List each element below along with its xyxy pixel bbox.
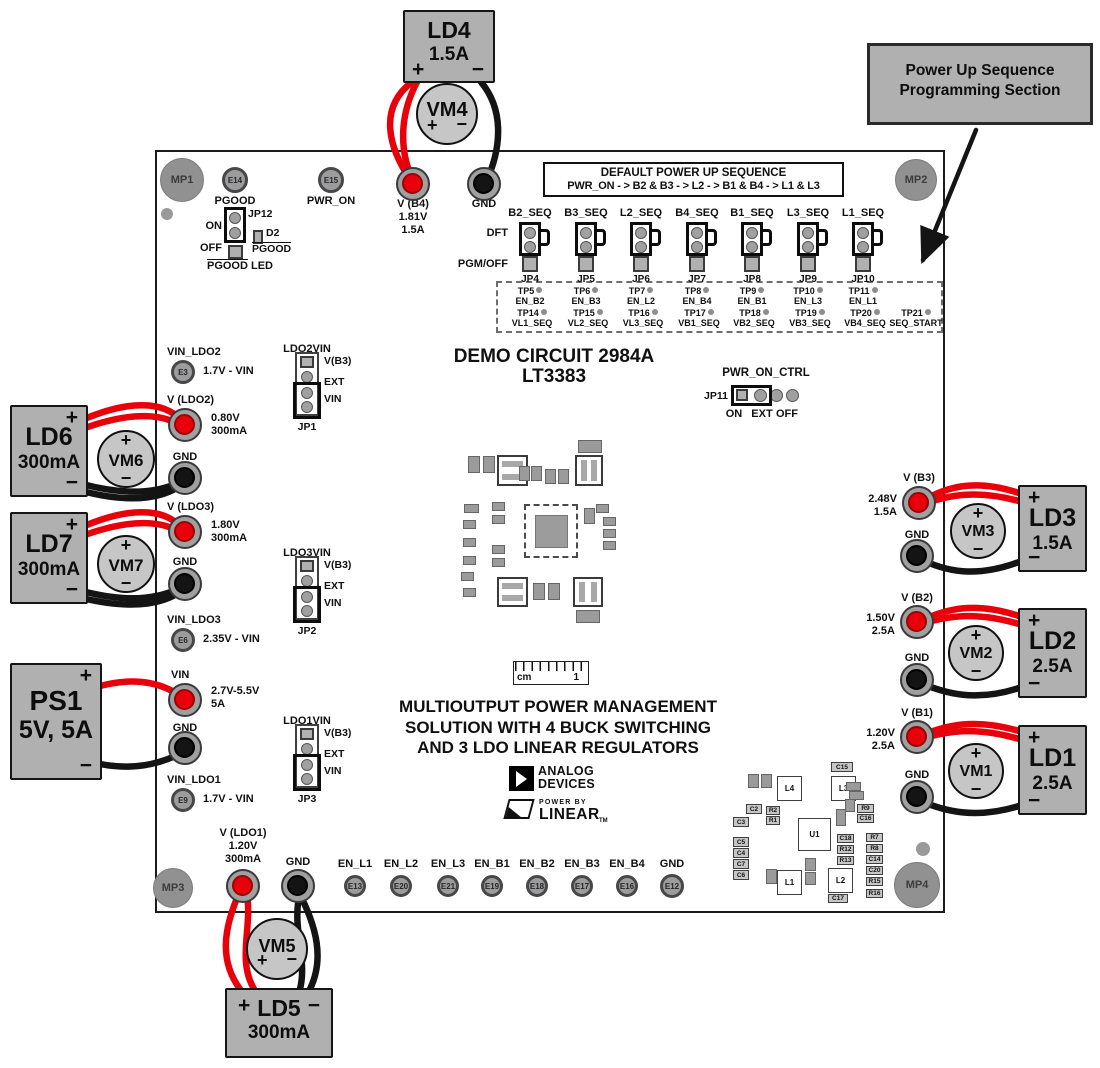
seq-jumper-tab bbox=[597, 229, 606, 246]
minus-terminal-mark: − bbox=[1028, 792, 1040, 809]
jp12-id-label: JP12 bbox=[248, 209, 273, 220]
description-line3: AND 3 LDO LINEAR REGULATORS bbox=[368, 738, 748, 759]
terminal-vin-label: VIN bbox=[171, 670, 189, 682]
seq-jumper-id-jp10: JP10 bbox=[841, 275, 885, 286]
silkscreen-pad bbox=[584, 508, 595, 524]
turret-e14: E14 bbox=[222, 167, 248, 193]
vin-jumper-pin3-label-jp2: VIN bbox=[324, 598, 342, 609]
load-box-ld3: LD31.5A+− bbox=[1018, 485, 1087, 572]
seq-jumper-pad bbox=[855, 256, 871, 272]
testpoint-pad-tp8 bbox=[703, 287, 709, 293]
seq-jumper-tab bbox=[652, 229, 661, 246]
terminal-vb4 bbox=[396, 167, 430, 201]
description-line1: MULTIOUTPUT POWER MANAGEMENT bbox=[368, 697, 748, 718]
load-box-ld7: LD7300mA+− bbox=[10, 512, 88, 604]
pgood-led-label: PGOOD LED bbox=[198, 261, 282, 273]
silkscreen-pad bbox=[603, 517, 616, 526]
silkscreen-pad bbox=[463, 520, 476, 529]
silkscreen-pad bbox=[558, 469, 569, 484]
default-sequence-line2: PWR_ON - > B2 & B3 - > L2 - > B1 & B4 - … bbox=[545, 180, 842, 192]
plus-terminal-mark: + bbox=[1028, 489, 1040, 506]
load-box-ld1: LD12.5A+− bbox=[1018, 725, 1087, 815]
voltmeter-vm7: VM7+− bbox=[97, 535, 155, 593]
vin-jumper-id-jp1: JP1 bbox=[282, 422, 332, 433]
callout-power-up-sequence: Power Up Sequence Programming Section bbox=[867, 43, 1093, 125]
silkscreen-pad bbox=[766, 869, 777, 884]
silkscreen-pad bbox=[492, 515, 505, 524]
testpoint-pad-tp16 bbox=[652, 309, 658, 315]
silkscreen-part-r12: R12 bbox=[837, 845, 854, 854]
vin-jumper-pin1-pad bbox=[300, 356, 314, 368]
terminal-vin bbox=[168, 683, 202, 717]
silkscreen-part-c15: C15 bbox=[831, 762, 853, 772]
terminal-gnd-b2-center bbox=[906, 669, 927, 690]
voltmeter-vm5: VM5+− bbox=[246, 918, 308, 980]
silkscreen-inductor bbox=[573, 577, 603, 607]
silkscreen-part-r9: R9 bbox=[857, 804, 874, 813]
minus-terminal-mark: − bbox=[950, 782, 1002, 797]
vin-jumper-pin2-label-jp3: EXT bbox=[324, 749, 344, 760]
minus-terminal-mark: − bbox=[66, 474, 78, 491]
terminal-vb1-label: V (B1) bbox=[877, 708, 957, 720]
vin-jumper-shunt-jp3 bbox=[293, 754, 321, 791]
plus-terminal-mark: + bbox=[952, 506, 1004, 521]
terminal-vldo3-value-1: 300mA bbox=[211, 533, 247, 545]
jp11-id-label: JP11 bbox=[694, 391, 728, 402]
seq-jumper-tab bbox=[541, 229, 550, 246]
silkscreen-pad bbox=[578, 440, 602, 453]
minus-terminal-mark: − bbox=[456, 117, 467, 132]
terminal-vb3-center bbox=[908, 492, 929, 513]
silkscreen-pad bbox=[463, 588, 476, 597]
testpoint-pad-tp21 bbox=[925, 309, 931, 315]
minus-terminal-mark: − bbox=[1028, 675, 1040, 692]
terminal-vldo1-center bbox=[232, 875, 253, 896]
turret-e20: E20 bbox=[390, 875, 412, 897]
terminal-vldo3 bbox=[168, 515, 202, 549]
silkscreen-pad bbox=[483, 456, 495, 473]
terminal-vin-center bbox=[174, 689, 195, 710]
seq-jumper-pin bbox=[635, 241, 647, 253]
silkscreen-part-l1: L1 bbox=[777, 870, 802, 895]
testpoint-signal-tp11: EN_L1 bbox=[829, 297, 897, 307]
default-sequence-box: DEFAULT POWER UP SEQUENCE PWR_ON - > B2 … bbox=[543, 162, 844, 197]
vin-jumper-pin1-label-jp2: V(B3) bbox=[324, 560, 351, 571]
silkscreen-part-c14: C14 bbox=[866, 855, 883, 864]
seq-jumper-pin bbox=[635, 227, 647, 239]
seq-jumper-id-jp4: JP4 bbox=[508, 275, 552, 286]
silkscreen-pad bbox=[805, 858, 816, 871]
silkscreen-pad bbox=[748, 774, 759, 788]
minus-terminal-mark: − bbox=[952, 542, 1004, 557]
terminal-vb1-value-1: 2.5A bbox=[843, 741, 895, 753]
pwr-on-ctrl-title: PWR_ON_CTRL bbox=[718, 367, 814, 379]
linear-tm-label: TM bbox=[599, 818, 608, 824]
default-sequence-line1: DEFAULT POWER UP SEQUENCE bbox=[545, 167, 842, 179]
turret-e21: E21 bbox=[437, 875, 459, 897]
testpoint-pad-tp17 bbox=[708, 309, 714, 315]
adi-triangle-icon bbox=[516, 771, 527, 787]
d2-id-label: D2 bbox=[266, 228, 279, 239]
ps1-rating: 5V, 5A bbox=[12, 716, 100, 745]
seq-jumper-pin bbox=[857, 227, 869, 239]
seq-row-label-dft: DFT bbox=[468, 228, 508, 240]
voltmeter-vm6: VM6+− bbox=[97, 430, 155, 488]
minus-terminal-mark: − bbox=[66, 581, 78, 598]
silkscreen-pad bbox=[845, 799, 855, 812]
seq-jumper-id-jp9: JP9 bbox=[786, 275, 830, 286]
silkscreen-pad bbox=[548, 583, 560, 600]
silkscreen-ruler: cm 1 bbox=[513, 661, 589, 685]
silkscreen-pad bbox=[761, 774, 772, 788]
terminal-vb3-value-0: 2.48V bbox=[845, 494, 897, 506]
silkscreen-part-c6: C6 bbox=[733, 870, 749, 880]
seq-jumper-id-jp7: JP7 bbox=[675, 275, 719, 286]
terminal-gnd-b3-center bbox=[906, 545, 927, 566]
voltmeter-vm3: VM3+− bbox=[950, 503, 1006, 559]
silkscreen-part-r1: R1 bbox=[766, 816, 780, 825]
silkscreen-pad bbox=[846, 782, 861, 791]
seq-jumper-pin bbox=[691, 241, 703, 253]
testpoint-pad-tp15 bbox=[597, 309, 603, 315]
minus-terminal-mark: − bbox=[286, 952, 297, 967]
d2-pgood-label: PGOOD bbox=[252, 244, 291, 255]
load-box-ld2: LD22.5A+− bbox=[1018, 608, 1087, 698]
terminal-vldo1-value-0: 1.20V bbox=[198, 841, 288, 853]
terminal-gnd-b1-center bbox=[906, 786, 927, 807]
jp12-off-label: OFF bbox=[190, 243, 222, 255]
testpoint-pad-tp14 bbox=[541, 309, 547, 315]
silkscreen-part-c3: C3 bbox=[733, 817, 749, 827]
mount-post-mp4: MP4 bbox=[894, 862, 940, 908]
terminal-gnd-ldo1 bbox=[281, 869, 315, 903]
terminal-vin-value-1: 5A bbox=[211, 699, 225, 711]
silkscreen-part-c16: C16 bbox=[857, 814, 874, 823]
silkscreen-part-r16: R16 bbox=[866, 889, 883, 898]
testpoint-signal-tp21: SEQ_START bbox=[882, 319, 950, 329]
turret-e3: E3 bbox=[171, 360, 195, 384]
terminal-vin-value-0: 2.7V-5.5V bbox=[211, 686, 259, 698]
mount-dot bbox=[916, 842, 930, 856]
load-box-ld6: LD6300mA+− bbox=[10, 405, 88, 497]
vin-jumper-pin2-label-jp2: EXT bbox=[324, 581, 344, 592]
jp11-shunt bbox=[731, 385, 772, 406]
testpoint-pad-tp10 bbox=[817, 287, 823, 293]
analog-devices-logo-icon bbox=[509, 766, 534, 791]
plus-terminal-mark: + bbox=[99, 538, 153, 553]
board-title: DEMO CIRCUIT 2984A LT3383 bbox=[444, 347, 664, 387]
jp12-pin-2 bbox=[229, 227, 241, 239]
terminal-gnd-b2 bbox=[900, 663, 934, 697]
silkscreen-pad bbox=[849, 791, 864, 800]
terminal-gnd-ldo2 bbox=[168, 461, 202, 495]
description-line2: SOLUTION WITH 4 BUCK SWITCHING bbox=[368, 718, 748, 739]
seq-jumper-pad bbox=[522, 256, 538, 272]
callout-line2: Programming Section bbox=[870, 81, 1090, 101]
voltmeter-vm4: VM4+− bbox=[416, 83, 478, 145]
vin-jumper-pin1-label-jp1: V(B3) bbox=[324, 356, 351, 367]
jp11-pin-4 bbox=[786, 389, 799, 402]
turret-e15: E15 bbox=[318, 167, 344, 193]
seq-jumper-pin bbox=[857, 241, 869, 253]
vin-jumper-id-jp3: JP3 bbox=[282, 794, 332, 805]
silkscreen-part-c4: C4 bbox=[733, 848, 749, 858]
linear-label: LINEAR bbox=[539, 807, 600, 824]
jp11-option-off: OFF bbox=[772, 409, 802, 421]
seq-jumper-pad bbox=[689, 256, 705, 272]
seq-jumper-tab bbox=[763, 229, 772, 246]
silkscreen-inductor bbox=[575, 455, 603, 486]
minus-terminal-mark: − bbox=[472, 61, 484, 78]
terminal-vb4-center bbox=[402, 173, 423, 194]
terminal-vldo3-center bbox=[174, 521, 195, 542]
turret-value-e9: 1.7V - VIN bbox=[203, 794, 254, 806]
ps1-name: PS1 bbox=[12, 685, 100, 716]
minus-terminal-mark: − bbox=[1028, 549, 1040, 566]
ruler-mark-label: 1 bbox=[573, 672, 579, 683]
testpoint-pad-tp11 bbox=[872, 287, 878, 293]
silkscreen-pad bbox=[492, 558, 505, 567]
terminal-gnd-top-center bbox=[473, 173, 494, 194]
silkscreen-qfn-pad bbox=[535, 515, 568, 548]
seq-jumper-pin bbox=[691, 227, 703, 239]
board-title-line1: DEMO CIRCUIT 2984A bbox=[444, 347, 664, 367]
plus-terminal-mark: + bbox=[257, 953, 268, 968]
ruler-unit-label: cm bbox=[517, 672, 531, 683]
silkscreen-part-l4: L4 bbox=[777, 776, 802, 801]
terminal-vb2 bbox=[900, 605, 934, 639]
vin-jumper-pin2-label-jp1: EXT bbox=[324, 377, 344, 388]
seq-jumper-pin bbox=[524, 241, 536, 253]
load-box-ld4: LD41.5A+− bbox=[403, 10, 495, 83]
pgood-led-label-suffix: LED bbox=[248, 260, 273, 272]
jp11-option-on: ON bbox=[720, 409, 748, 421]
silkscreen-pad bbox=[463, 556, 476, 565]
turret-title-e14: PGOOD bbox=[205, 196, 265, 208]
seq-jumper-pad bbox=[744, 256, 760, 272]
turret-title-e15: PWR_ON bbox=[299, 196, 363, 208]
testpoint-pad-tp7 bbox=[647, 287, 653, 293]
ld4-name: LD4 bbox=[405, 17, 493, 43]
turret-e19: E19 bbox=[481, 875, 503, 897]
seq-jumper-pad bbox=[633, 256, 649, 272]
turret-e18: E18 bbox=[526, 875, 548, 897]
terminal-vb4-value-1: 1.5A bbox=[373, 225, 453, 237]
mount-post-mp1: MP1 bbox=[160, 158, 204, 202]
terminal-vb3-value-1: 1.5A bbox=[845, 507, 897, 519]
terminal-vb2-label: V (B2) bbox=[877, 593, 957, 605]
ld5-rating: 300mA bbox=[227, 1021, 331, 1044]
turret-e9: E9 bbox=[171, 788, 195, 812]
vin-jumper-pin3-label-jp1: VIN bbox=[324, 394, 342, 405]
seq-jumper-pin bbox=[746, 227, 758, 239]
turret-e16: E16 bbox=[616, 875, 638, 897]
silkscreen-pad bbox=[545, 469, 556, 484]
plus-terminal-mark: + bbox=[950, 746, 1002, 761]
turret-e6: E6 bbox=[171, 628, 195, 652]
silkscreen-part-c17: C17 bbox=[828, 894, 848, 903]
board-description: MULTIOUTPUT POWER MANAGEMENT SOLUTION WI… bbox=[368, 697, 748, 759]
testpoint-pad-tp19 bbox=[819, 309, 825, 315]
testpoint-pad-tp20 bbox=[874, 309, 880, 315]
silkscreen-part-c5: C5 bbox=[733, 837, 749, 847]
terminal-vb1-value-0: 1.20V bbox=[843, 728, 895, 740]
terminal-vldo2-value-0: 0.80V bbox=[211, 413, 240, 425]
turret-title-e12: GND bbox=[642, 859, 702, 871]
silkscreen-part-c18: C18 bbox=[837, 834, 854, 843]
silkscreen-part-c7: C7 bbox=[733, 859, 749, 869]
vin-jumper-shunt-jp2 bbox=[293, 586, 321, 623]
mount-dot bbox=[161, 208, 173, 220]
seq-jumper-pin bbox=[746, 241, 758, 253]
load-box-ld5: LD5300mA+− bbox=[225, 988, 333, 1058]
adi-logo-text: ANALOG DEVICES bbox=[538, 765, 595, 790]
silkscreen-pad bbox=[519, 466, 530, 481]
terminal-gnd-b3 bbox=[900, 539, 934, 573]
pgood-led-label-main: PGOOD bbox=[207, 260, 248, 272]
silkscreen-pad bbox=[531, 466, 542, 481]
minus-terminal-mark: − bbox=[308, 997, 320, 1014]
ruler-ticks bbox=[515, 662, 587, 671]
silkscreen-part-l2: L2 bbox=[828, 868, 853, 893]
terminal-vldo1-label: V (LDO1) bbox=[198, 828, 288, 840]
mount-post-mp3: MP3 bbox=[153, 868, 193, 908]
terminal-gnd-ldo1-label: GND bbox=[269, 857, 327, 869]
terminal-vb1-center bbox=[906, 726, 927, 747]
plus-terminal-mark: + bbox=[99, 433, 153, 448]
lt-triangle-icon bbox=[506, 807, 524, 817]
silkscreen-pad bbox=[533, 583, 545, 600]
seq-row-label-pgm-off: PGM/OFF bbox=[428, 259, 508, 271]
seq-jumper-pad bbox=[578, 256, 594, 272]
minus-terminal-mark: − bbox=[99, 471, 153, 486]
plus-terminal-mark: + bbox=[80, 667, 92, 684]
jp12-pin-1 bbox=[229, 212, 241, 224]
voltmeter-vm1: VM1+− bbox=[948, 743, 1004, 799]
terminal-vldo3-value-0: 1.80V bbox=[211, 520, 240, 532]
mount-post-mp2: MP2 bbox=[895, 159, 937, 201]
d2-led bbox=[253, 230, 263, 244]
plus-terminal-mark: + bbox=[427, 118, 438, 133]
vin-jumper-pin1-label-jp3: V(B3) bbox=[324, 728, 351, 739]
turret-e12: E12 bbox=[660, 874, 684, 898]
seq-jumper-pin bbox=[580, 241, 592, 253]
silkscreen-pad bbox=[464, 504, 479, 513]
seq-jumper-id-jp8: JP8 bbox=[730, 275, 774, 286]
silkscreen-pad bbox=[463, 538, 476, 547]
callout-line1: Power Up Sequence bbox=[870, 61, 1090, 81]
silkscreen-part-r7: R7 bbox=[866, 833, 883, 842]
seq-jumper-id-jp5: JP5 bbox=[564, 275, 608, 286]
silkscreen-pad bbox=[492, 502, 505, 511]
turret-value-e3: 1.7V - VIN bbox=[203, 366, 254, 378]
terminal-vldo2-label: V (LDO2) bbox=[167, 395, 214, 407]
terminal-vldo2-value-1: 300mA bbox=[211, 426, 247, 438]
terminal-vb1 bbox=[900, 720, 934, 754]
jp12-pin-3 bbox=[228, 245, 243, 259]
plus-terminal-mark: + bbox=[238, 997, 250, 1014]
silkscreen-pad bbox=[596, 504, 609, 513]
minus-terminal-mark: − bbox=[80, 757, 92, 774]
silkscreen-pad bbox=[492, 545, 505, 554]
silkscreen-part-r13: R13 bbox=[837, 856, 854, 865]
silkscreen-pad bbox=[603, 541, 616, 550]
terminal-gnd-ldo1-center bbox=[287, 875, 308, 896]
silkscreen-part-c2: C2 bbox=[746, 804, 762, 814]
terminal-gnd-ldo3 bbox=[168, 567, 202, 601]
turret-e13: E13 bbox=[344, 875, 366, 897]
adi-logo-line1: ANALOG bbox=[538, 765, 595, 778]
terminal-gnd-top bbox=[467, 167, 501, 201]
vin-jumper-id-jp2: JP2 bbox=[282, 626, 332, 637]
plus-terminal-mark: + bbox=[66, 409, 78, 426]
terminal-gnd-vin bbox=[168, 731, 202, 765]
terminal-vb3-label: V (B3) bbox=[879, 473, 959, 485]
silkscreen-pad bbox=[468, 456, 480, 473]
seq-jumper-tab bbox=[819, 229, 828, 246]
turret-e17: E17 bbox=[571, 875, 593, 897]
silkscreen-pad bbox=[603, 529, 616, 538]
terminal-vldo2-center bbox=[174, 414, 195, 435]
terminal-vldo3-label: V (LDO3) bbox=[167, 502, 214, 514]
seq-jumper-id-jp6: JP6 bbox=[619, 275, 663, 286]
terminal-vb3 bbox=[902, 486, 936, 520]
terminal-vldo2 bbox=[168, 408, 202, 442]
silkscreen-inductor bbox=[497, 577, 528, 607]
seq-jumper-pad bbox=[800, 256, 816, 272]
silkscreen-pad bbox=[805, 872, 816, 885]
voltmeter-vm2: VM2+− bbox=[948, 625, 1004, 681]
seq-jumper-signal-jp10: L1_SEQ bbox=[830, 208, 896, 220]
terminal-gnd-ldo2-center bbox=[174, 467, 195, 488]
testpoint-pad-tp6 bbox=[592, 287, 598, 293]
seq-jumper-tab bbox=[874, 229, 883, 246]
seq-jumper-pin bbox=[802, 227, 814, 239]
board-title-line2: LT3383 bbox=[444, 367, 664, 387]
seq-jumper-tab bbox=[708, 229, 717, 246]
minus-terminal-mark: − bbox=[99, 576, 153, 591]
jp12-on-label: ON bbox=[194, 221, 222, 233]
seq-jumper-pin bbox=[580, 227, 592, 239]
turret-value-e6: 2.35V - VIN bbox=[203, 634, 260, 646]
silkscreen-part-c20: C20 bbox=[866, 866, 883, 875]
turret-title-e9: VIN_LDO1 bbox=[167, 775, 221, 787]
diagram-canvas: Power Up Sequence Programming Section DE… bbox=[0, 0, 1100, 1068]
vin-jumper-pin1-pad bbox=[300, 560, 314, 572]
terminal-gnd-b1 bbox=[900, 780, 934, 814]
terminal-vb2-center bbox=[906, 611, 927, 632]
vin-jumper-pin1-pad bbox=[300, 728, 314, 740]
plus-terminal-mark: + bbox=[412, 61, 424, 78]
testpoint-pad-tp18 bbox=[763, 309, 769, 315]
minus-terminal-mark: − bbox=[950, 664, 1002, 679]
load-box-ps1: PS15V, 5A+− bbox=[10, 663, 102, 780]
silkscreen-pad bbox=[461, 572, 474, 581]
terminal-vb4-value-0: 1.81V bbox=[373, 212, 453, 224]
vin-jumper-pin3-label-jp3: VIN bbox=[324, 766, 342, 777]
plus-terminal-mark: + bbox=[1028, 612, 1040, 629]
silkscreen-part-u1: U1 bbox=[798, 818, 831, 851]
silkscreen-part-r8: R8 bbox=[866, 844, 883, 853]
terminal-vb2-value-0: 1.50V bbox=[843, 613, 895, 625]
turret-title-e3: VIN_LDO2 bbox=[167, 347, 221, 359]
silkscreen-pad bbox=[576, 610, 600, 623]
plus-terminal-mark: + bbox=[1028, 729, 1040, 746]
silkscreen-part-r15: R15 bbox=[866, 877, 883, 886]
silkscreen-part-r2: R2 bbox=[766, 806, 780, 815]
seq-jumper-pin bbox=[802, 241, 814, 253]
linear-tech-logo-icon bbox=[503, 799, 534, 819]
